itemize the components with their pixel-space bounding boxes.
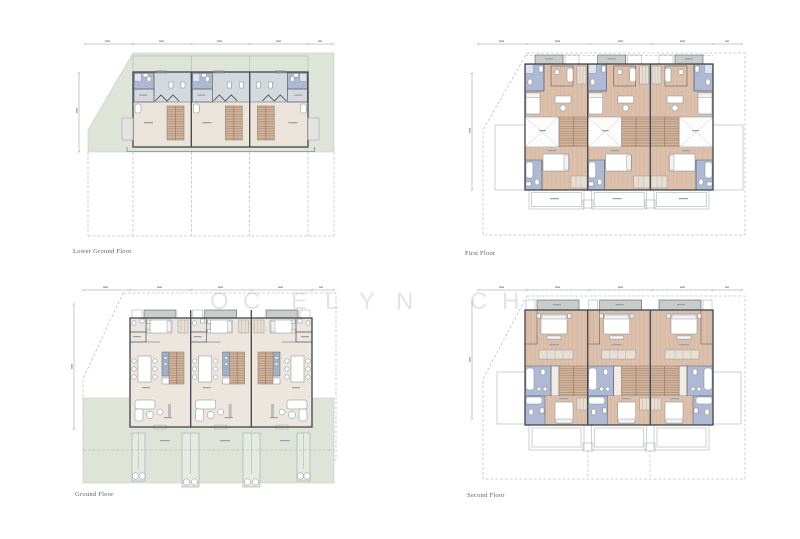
building bbox=[130, 310, 312, 429]
dimension-line-top bbox=[82, 287, 335, 292]
building bbox=[525, 300, 713, 450]
floor-plan-sheet: O C E L Y N C H bbox=[0, 0, 800, 539]
watermark-letter: Y bbox=[359, 290, 375, 314]
floor-plan-lower-ground: Lower Ground Floor bbox=[70, 30, 345, 260]
second-floor-drawing bbox=[455, 284, 750, 506]
watermark-letter: N bbox=[396, 290, 413, 314]
lower-ground-drawing bbox=[70, 30, 345, 252]
floor-label-ground: Ground Floor bbox=[75, 491, 114, 498]
floor-label-second: Second Floor bbox=[467, 492, 505, 499]
dimension-line-left bbox=[71, 303, 75, 430]
dimension-line-top bbox=[477, 41, 743, 46]
first-floor-drawing bbox=[455, 30, 750, 252]
dimension-line-left bbox=[76, 72, 80, 153]
terrace-boundary bbox=[88, 152, 334, 236]
dimension-line-top bbox=[84, 41, 334, 46]
dimension-line-left bbox=[469, 301, 473, 420]
floor-plan-ground: Ground Floor bbox=[68, 284, 353, 510]
building bbox=[122, 71, 319, 152]
dimension-line-top bbox=[477, 287, 743, 292]
floor-label-lower-ground: Lower Ground Floor bbox=[73, 248, 132, 255]
floor-label-first: First Floor bbox=[465, 250, 495, 257]
lower-terrace-dashes bbox=[588, 450, 650, 479]
dimension-line-left bbox=[469, 72, 473, 191]
building bbox=[525, 55, 713, 209]
floor-plan-second: Second Floor bbox=[455, 284, 750, 510]
floor-plan-first: First Floor bbox=[455, 30, 750, 260]
ground-floor-drawing bbox=[68, 284, 353, 506]
